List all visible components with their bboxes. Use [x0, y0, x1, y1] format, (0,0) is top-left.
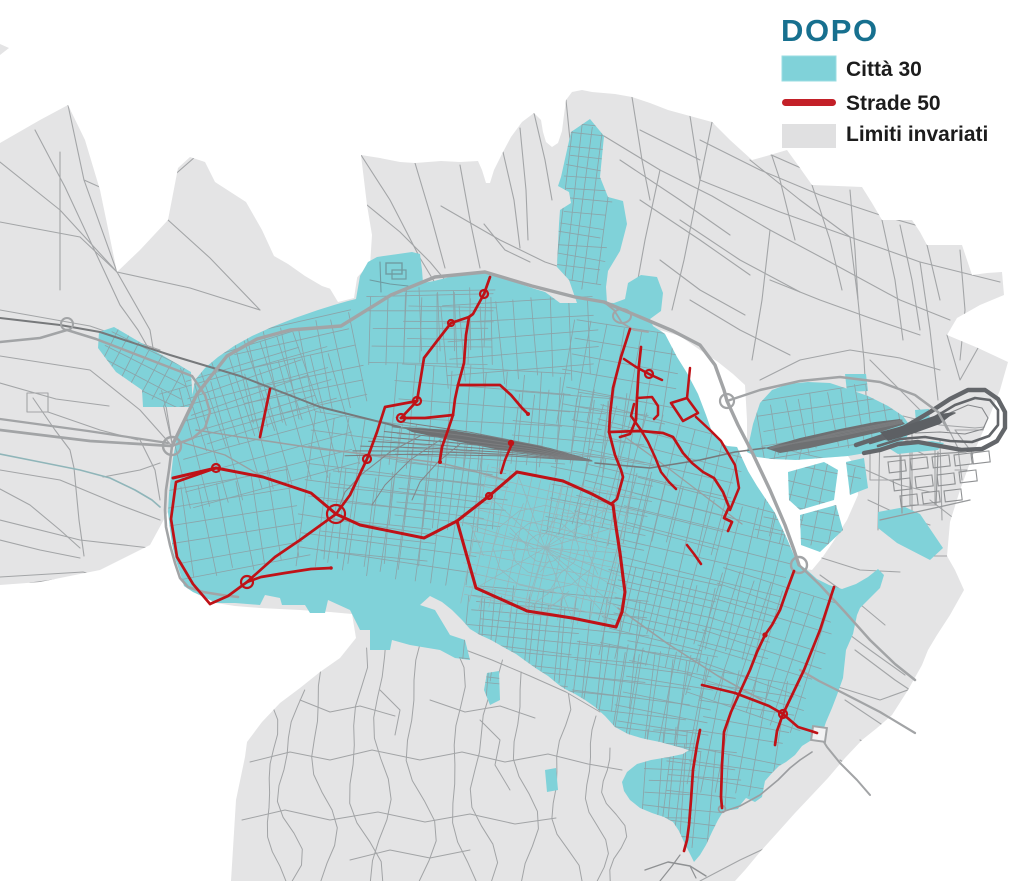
svg-text:DOPO: DOPO — [781, 13, 879, 48]
svg-text:Strade 50: Strade 50 — [846, 92, 941, 115]
svg-text:Città 30: Città 30 — [846, 58, 922, 81]
svg-text:Limiti invariati: Limiti invariati — [846, 123, 988, 146]
